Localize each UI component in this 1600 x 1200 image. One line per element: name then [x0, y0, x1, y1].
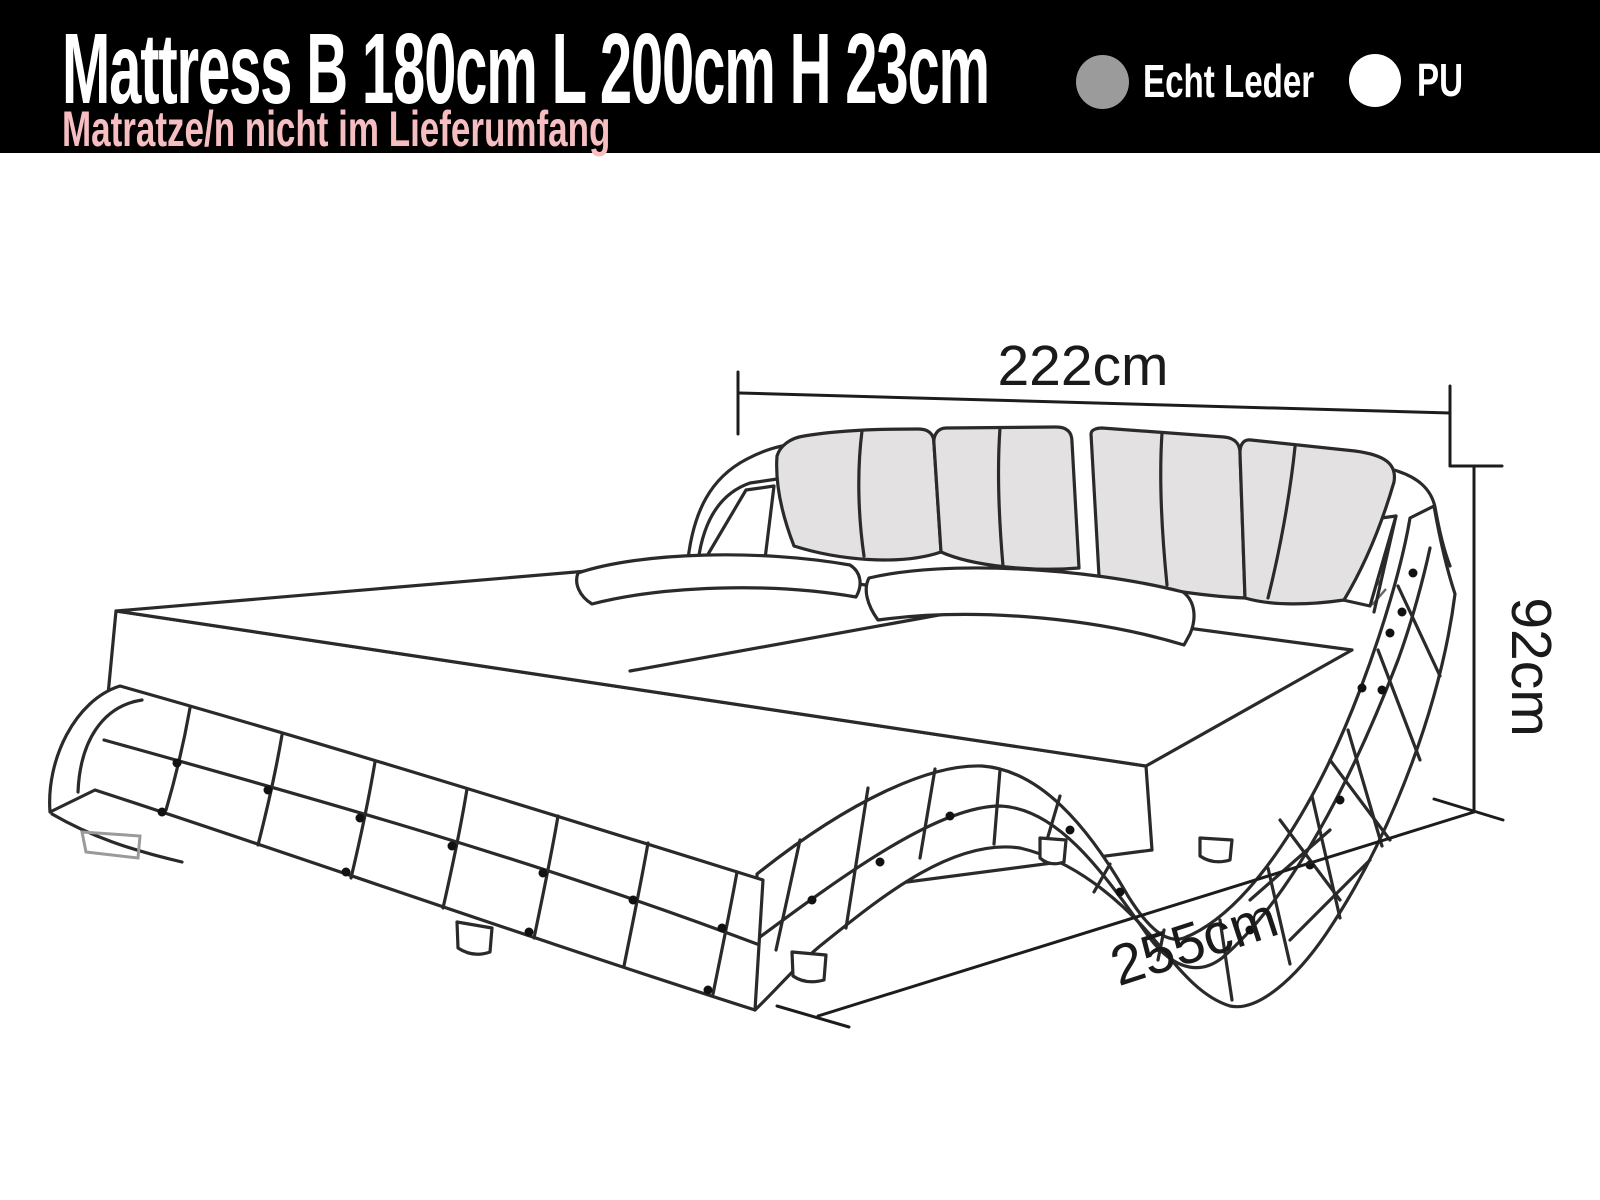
- width-dimension-label: 222cm: [997, 334, 1168, 398]
- dimension-height: 92cm: [1450, 466, 1563, 812]
- product-dimension-screenshot: Mattress B 180cm L 200cm H 23cm Matratze…: [0, 0, 1600, 1200]
- height-dimension-label: 92cm: [1499, 597, 1563, 736]
- bed-dimension-drawing: 222cm 92cm 255cm: [0, 0, 1600, 1200]
